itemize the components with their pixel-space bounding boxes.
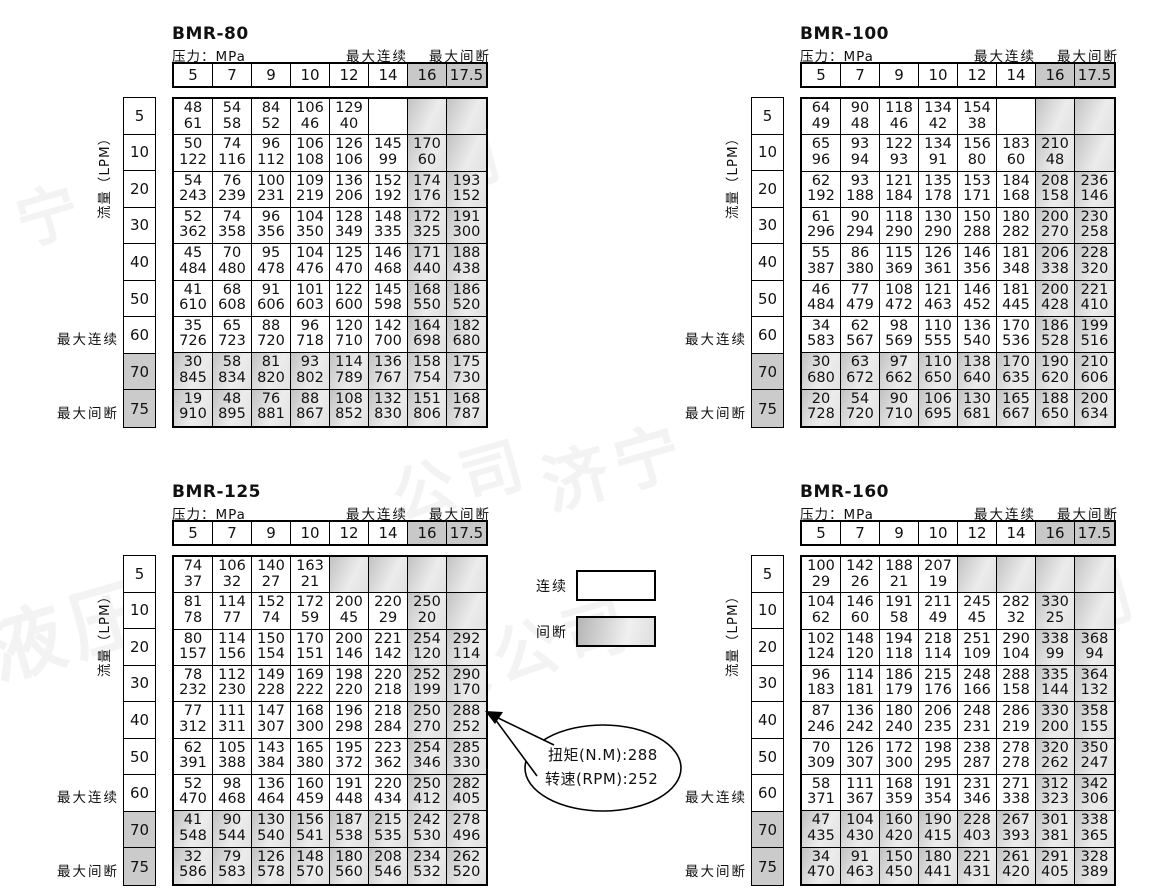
data-cell: 5458 (213, 99, 252, 135)
data-cell (369, 99, 408, 135)
data-cell: 181348 (997, 244, 1036, 280)
data-cell (447, 135, 486, 171)
data-cell: 65723 (213, 317, 252, 353)
data-cell: 110650 (919, 353, 958, 389)
data-cell: 88867 (291, 390, 330, 426)
pressure-col-header: 5 (174, 64, 213, 86)
flow-axis-label: 流量（LPM） (93, 573, 113, 693)
data-cell: 20045 (330, 593, 369, 629)
data-cell: 364132 (1075, 666, 1114, 702)
pressure-col-header: 10 (291, 64, 330, 86)
data-cell: 180282 (997, 208, 1036, 244)
data-cell: 188438 (447, 244, 486, 280)
data-cell: 122600 (330, 281, 369, 317)
data-cell: 194118 (880, 630, 919, 666)
data-cell: 91463 (841, 848, 880, 884)
data-cell: 199516 (1075, 317, 1114, 353)
data-cell: 7437 (174, 557, 213, 593)
table-bmr125: BMR-125 压力：MPa 最大连续 最大间断 5791012141617.5… (43, 482, 495, 895)
data-cell: 90710 (880, 390, 919, 426)
pressure-header-row: 5791012141617.5 (172, 520, 488, 546)
table-title: BMR-80 (172, 24, 249, 44)
data-cell (958, 557, 997, 593)
pressure-col-header: 12 (330, 522, 369, 544)
data-cell: 168787 (447, 390, 486, 426)
data-cell: 191300 (447, 208, 486, 244)
data-cell: 172325 (408, 208, 447, 244)
data-cell: 198295 (919, 739, 958, 775)
data-cell: 114789 (330, 353, 369, 389)
data-cell: 252199 (408, 666, 447, 702)
data-cell (1036, 557, 1075, 593)
data-cell: 220434 (369, 775, 408, 811)
data-cell: 9048 (841, 99, 880, 135)
data-cell: 180441 (919, 848, 958, 884)
data-cell: 151806 (408, 390, 447, 426)
flow-row-label: 30 (124, 208, 155, 245)
pressure-header-row: 5791012141617.5 (800, 62, 1116, 88)
data-cell: 16321 (291, 557, 330, 593)
data-cell: 19158 (880, 593, 919, 629)
flow-row-label: 20 (752, 171, 783, 208)
table-meta-row: 压力：MPa 最大连续 最大间断 (172, 503, 488, 518)
flow-axis-label: 流量（LPM） (721, 115, 741, 235)
pressure-col-header: 7 (841, 522, 880, 544)
data-cell: 126106 (330, 135, 369, 171)
data-cell: 15438 (958, 99, 997, 135)
data-cell: 77312 (174, 702, 213, 738)
data-cell: 58834 (213, 353, 252, 389)
pressure-col-header: 14 (369, 64, 408, 86)
pressure-col-header: 16 (1036, 522, 1075, 544)
data-cell: 248231 (958, 702, 997, 738)
data-cell: 170151 (291, 630, 330, 666)
data-cell: 96356 (252, 208, 291, 244)
data-cell: 286219 (997, 702, 1036, 738)
flow-row-label: 70 (752, 812, 783, 849)
flow-row-label: 5 (124, 556, 155, 593)
data-cell: 291405 (1036, 848, 1075, 884)
data-cell: 288158 (997, 666, 1036, 702)
data-cell (1075, 135, 1114, 171)
data-cell: 36894 (1075, 630, 1114, 666)
data-cell (408, 99, 447, 135)
flow-row-label: 10 (124, 135, 155, 172)
data-cell: 168550 (408, 281, 447, 317)
data-cell: 121184 (880, 172, 919, 208)
data-cell: 236146 (1075, 172, 1114, 208)
data-cell: 180560 (330, 848, 369, 884)
flow-row-label: 20 (752, 629, 783, 666)
data-cell: 170635 (997, 353, 1036, 389)
data-cell: 130540 (252, 811, 291, 847)
data-cell: 208546 (369, 848, 408, 884)
flow-row-label: 40 (124, 244, 155, 281)
data-cell: 150154 (252, 630, 291, 666)
pressure-col-header: 7 (213, 522, 252, 544)
data-cell: 109219 (291, 172, 330, 208)
data-cell: 97662 (880, 353, 919, 389)
data-cell: 17060 (408, 135, 447, 171)
data-cell: 95478 (252, 244, 291, 280)
data-cell: 328389 (1075, 848, 1114, 884)
flow-label-column: 51020304050607075 (123, 555, 156, 886)
flow-row-label: 5 (124, 98, 155, 135)
data-cell: 290170 (447, 666, 486, 702)
data-cell: 15274 (252, 593, 291, 629)
table-bmr160: BMR-160 压力：MPa 最大连续 最大间断 5791012141617.5… (671, 482, 1123, 895)
data-cell: 160420 (880, 811, 919, 847)
data-cell: 48895 (213, 390, 252, 426)
data-cell: 33899 (1036, 630, 1075, 666)
data-cell: 210606 (1075, 353, 1114, 389)
flow-axis-label: 流量（LPM） (721, 573, 741, 693)
data-cell: 196298 (330, 702, 369, 738)
flow-row-label: 30 (124, 666, 155, 703)
data-cell: 45484 (174, 244, 213, 280)
data-cell: 80157 (174, 630, 213, 666)
data-cell: 18360 (997, 135, 1036, 171)
data-cell: 52362 (174, 208, 213, 244)
data-cell: 4861 (174, 99, 213, 135)
data-cell: 96112 (252, 135, 291, 171)
flow-row-label: 30 (752, 208, 783, 245)
data-cell: 218284 (369, 702, 408, 738)
data-cell: 10029 (802, 557, 841, 593)
data-cell: 88720 (252, 317, 291, 353)
data-cell: 86380 (841, 244, 880, 280)
data-cell: 254346 (408, 739, 447, 775)
table-title: BMR-125 (172, 482, 261, 502)
pressure-col-header: 9 (880, 522, 919, 544)
data-cell: 19910 (174, 390, 213, 426)
data-cell: 30845 (174, 353, 213, 389)
pressure-col-header: 7 (213, 64, 252, 86)
data-cell: 32586 (174, 848, 213, 884)
table-meta-row: 压力：MPa 最大连续 最大间断 (172, 45, 488, 60)
data-cell: 13442 (919, 99, 958, 135)
flow-row-label: 50 (752, 281, 783, 318)
data-cell: 221431 (958, 848, 997, 884)
data-cell: 136540 (958, 317, 997, 353)
data-cell: 136242 (841, 702, 880, 738)
flow-row-label: 75 (124, 848, 155, 885)
data-cell (369, 557, 408, 593)
data-cell: 11846 (880, 99, 919, 135)
data-cell: 174176 (408, 172, 447, 208)
data-cell: 28232 (997, 593, 1036, 629)
data-cell: 47435 (802, 811, 841, 847)
pressure-col-header: 16 (1036, 64, 1075, 86)
legend-continuous-swatch (576, 570, 656, 601)
flow-axis-label: 流量（LPM） (93, 115, 113, 235)
data-cell: 87246 (802, 702, 841, 738)
data-cell: 8452 (252, 99, 291, 135)
data-cell: 335144 (1036, 666, 1075, 702)
data-cell (1075, 593, 1114, 629)
data-cell: 52470 (174, 775, 213, 811)
data-cell: 96718 (291, 317, 330, 353)
flow-label-column: 51020304050607075 (751, 97, 784, 428)
data-cell: 14226 (841, 557, 880, 593)
flow-row-label: 10 (752, 135, 783, 172)
data-cell: 142700 (369, 317, 408, 353)
datasheet-page: 宁有限公司有限济宁公司液压限公司公司 BMR-80 压力：MPa 最大连续 最大… (0, 0, 1160, 895)
data-cell: 200270 (1036, 208, 1075, 244)
data-cell: 182680 (447, 317, 486, 353)
data-cell: 10462 (802, 593, 841, 629)
data-cell: 206338 (1036, 244, 1075, 280)
data-cell: 186528 (1036, 317, 1075, 353)
data-cell: 76239 (213, 172, 252, 208)
table-bmr80: BMR-80 压力：MPa 最大连续 最大间断 5791012141617.5 … (43, 24, 495, 438)
pressure-header-row: 5791012141617.5 (172, 62, 488, 88)
pressure-header-row: 5791012141617.5 (800, 520, 1116, 546)
flow-row-label: 75 (752, 390, 783, 427)
data-cell: 130290 (919, 208, 958, 244)
data-cell: 250270 (408, 702, 447, 738)
data-cell: 22029 (369, 593, 408, 629)
pressure-col-header: 10 (291, 522, 330, 544)
table-meta-row: 压力：MPa 最大连续 最大间断 (800, 45, 1116, 60)
max-intermittent-row-label: 最大间断 (33, 402, 119, 422)
data-cell: 14660 (841, 593, 880, 629)
callout-speed-text: 转速(RPM):252 (545, 768, 658, 789)
data-cell: 34583 (802, 317, 841, 353)
data-cell: 190620 (1036, 353, 1075, 389)
data-cell: 180240 (880, 702, 919, 738)
data-cell: 168300 (291, 702, 330, 738)
flow-row-label: 50 (124, 281, 155, 318)
data-cell: 30680 (802, 353, 841, 389)
data-cell: 61296 (802, 208, 841, 244)
data-cell: 62192 (802, 172, 841, 208)
data-cell: 130681 (958, 390, 997, 426)
pressure-col-header: 10 (919, 64, 958, 86)
data-cell: 231346 (958, 775, 997, 811)
data-cell: 278278 (997, 739, 1036, 775)
data-cell: 6449 (802, 99, 841, 135)
data-cell: 301381 (1036, 811, 1075, 847)
data-cell: 193152 (447, 172, 486, 208)
data-cell: 165667 (997, 390, 1036, 426)
data-cell: 198220 (330, 666, 369, 702)
data-cell: 115369 (880, 244, 919, 280)
data-cell: 186520 (447, 281, 486, 317)
table-meta-row: 压力：MPa 最大连续 最大间断 (800, 503, 1116, 518)
data-cell: 228320 (1075, 244, 1114, 280)
data-grid: 7437106321402716321817811477152741725920… (172, 555, 488, 886)
data-grid: 1002914226188212071910462146601915821149… (800, 555, 1116, 886)
legend-intermittent-label: 间断 (536, 622, 568, 642)
data-grid: 6449904811846134421543865969394122931349… (800, 97, 1116, 428)
data-cell: 17259 (291, 593, 330, 629)
pressure-col-header: 9 (252, 64, 291, 86)
data-cell: 100231 (252, 172, 291, 208)
pressure-col-header: 17.5 (1075, 64, 1114, 86)
data-cell: 184168 (997, 172, 1036, 208)
data-cell: 358155 (1075, 702, 1114, 738)
data-cell: 18821 (880, 557, 919, 593)
data-cell: 14599 (369, 135, 408, 171)
data-cell (447, 557, 486, 593)
data-cell: 13491 (919, 135, 958, 171)
data-cell: 20728 (802, 390, 841, 426)
data-cell: 147307 (252, 702, 291, 738)
data-cell: 208158 (1036, 172, 1075, 208)
data-cell: 132830 (369, 390, 408, 426)
data-cell: 78232 (174, 666, 213, 702)
data-cell: 110555 (919, 317, 958, 353)
data-cell: 118290 (880, 208, 919, 244)
data-cell: 138640 (958, 353, 997, 389)
data-cell: 223362 (369, 739, 408, 775)
pressure-col-header: 17.5 (447, 522, 486, 544)
data-cell: 254120 (408, 630, 447, 666)
data-cell: 114156 (213, 630, 252, 666)
data-cell: 200634 (1075, 390, 1114, 426)
data-cell: 168359 (880, 775, 919, 811)
pressure-col-header: 16 (408, 522, 447, 544)
pressure-col-header: 14 (997, 522, 1036, 544)
data-cell (997, 99, 1036, 135)
data-cell (1075, 99, 1114, 135)
data-cell: 121463 (919, 281, 958, 317)
data-cell: 91606 (252, 281, 291, 317)
data-cell: 6596 (802, 135, 841, 171)
data-cell: 160459 (291, 775, 330, 811)
data-cell: 171440 (408, 244, 447, 280)
pressure-col-header: 12 (330, 64, 369, 86)
data-cell: 111311 (213, 702, 252, 738)
data-cell: 128349 (330, 208, 369, 244)
data-cell: 175730 (447, 353, 486, 389)
data-cell: 58371 (802, 775, 841, 811)
data-cell: 169222 (291, 666, 330, 702)
data-cell: 152192 (369, 172, 408, 208)
data-cell: 54720 (841, 390, 880, 426)
data-cell: 90294 (841, 208, 880, 244)
data-cell: 200428 (1036, 281, 1075, 317)
data-cell: 170536 (997, 317, 1036, 353)
pressure-col-header: 14 (997, 64, 1036, 86)
flow-row-label: 40 (752, 702, 783, 739)
data-cell: 54243 (174, 172, 213, 208)
flow-row-label: 10 (752, 593, 783, 630)
data-cell: 10646 (291, 99, 330, 135)
data-cell: 68608 (213, 281, 252, 317)
data-cell: 76881 (252, 390, 291, 426)
flow-row-label: 5 (752, 556, 783, 593)
data-cell: 188650 (1036, 390, 1075, 426)
data-cell: 136464 (252, 775, 291, 811)
flow-row-label: 75 (124, 390, 155, 427)
flow-row-label: 50 (752, 739, 783, 776)
data-cell: 126578 (252, 848, 291, 884)
max-continuous-row-label: 最大连续 (33, 328, 119, 348)
data-cell: 187538 (330, 811, 369, 847)
data-cell: 320262 (1036, 739, 1075, 775)
data-cell: 145598 (369, 281, 408, 317)
data-cell: 12940 (330, 99, 369, 135)
data-cell: 251109 (958, 630, 997, 666)
legend: 连续 间断 (536, 570, 656, 662)
data-cell: 46484 (802, 281, 841, 317)
data-cell: 77479 (841, 281, 880, 317)
pressure-col-header: 5 (802, 522, 841, 544)
data-cell: 35726 (174, 317, 213, 353)
data-cell: 20719 (919, 557, 958, 593)
data-cell: 135178 (919, 172, 958, 208)
data-cell (1036, 99, 1075, 135)
flow-row-label: 30 (752, 666, 783, 703)
data-cell: 181445 (997, 281, 1036, 317)
data-cell: 267393 (997, 811, 1036, 847)
data-cell: 238287 (958, 739, 997, 775)
pressure-col-header: 12 (958, 522, 997, 544)
data-cell: 221410 (1075, 281, 1114, 317)
data-cell: 165380 (291, 739, 330, 775)
flow-row-label: 20 (124, 629, 155, 666)
max-continuous-row-label: 最大连续 (661, 328, 747, 348)
pressure-col-header: 9 (252, 522, 291, 544)
data-cell: 218114 (919, 630, 958, 666)
data-cell: 79583 (213, 848, 252, 884)
data-cell: 190415 (919, 811, 958, 847)
flow-row-label: 40 (752, 244, 783, 281)
legend-intermittent-swatch (576, 616, 656, 647)
data-cell: 262520 (447, 848, 486, 884)
pressure-col-header: 7 (841, 64, 880, 86)
data-cell: 172300 (880, 739, 919, 775)
data-cell: 146356 (958, 244, 997, 280)
table-bmr100: BMR-100 压力：MPa 最大连续 最大间断 5791012141617.5… (671, 24, 1123, 438)
data-cell: 234532 (408, 848, 447, 884)
flow-row-label: 70 (124, 354, 155, 391)
data-cell: 8178 (174, 593, 213, 629)
data-cell (997, 557, 1036, 593)
data-cell: 126307 (841, 739, 880, 775)
data-cell (447, 99, 486, 135)
data-cell: 104476 (291, 244, 330, 280)
pressure-col-header: 16 (408, 64, 447, 86)
pressure-col-header: 9 (880, 64, 919, 86)
pressure-col-header: 12 (958, 64, 997, 86)
data-cell: 101603 (291, 281, 330, 317)
data-cell: 50122 (174, 135, 213, 171)
data-cell: 148570 (291, 848, 330, 884)
data-cell: 261420 (997, 848, 1036, 884)
data-cell: 74358 (213, 208, 252, 244)
data-cell: 9394 (841, 135, 880, 171)
pressure-col-header: 10 (919, 522, 958, 544)
data-cell: 330200 (1036, 702, 1075, 738)
data-cell: 98468 (213, 775, 252, 811)
callout-torque-text: 扭矩(N.M):288 (548, 744, 658, 765)
data-cell: 33025 (1036, 593, 1075, 629)
data-cell: 186179 (880, 666, 919, 702)
data-cell: 93802 (291, 353, 330, 389)
data-cell: 12293 (880, 135, 919, 171)
data-cell: 150288 (958, 208, 997, 244)
data-cell: 221142 (369, 630, 408, 666)
data-cell: 158754 (408, 353, 447, 389)
pressure-col-header: 5 (174, 522, 213, 544)
data-cell (408, 557, 447, 593)
data-cell: 153171 (958, 172, 997, 208)
legend-row-intermittent: 间断 (536, 616, 656, 647)
data-cell: 350247 (1075, 739, 1114, 775)
